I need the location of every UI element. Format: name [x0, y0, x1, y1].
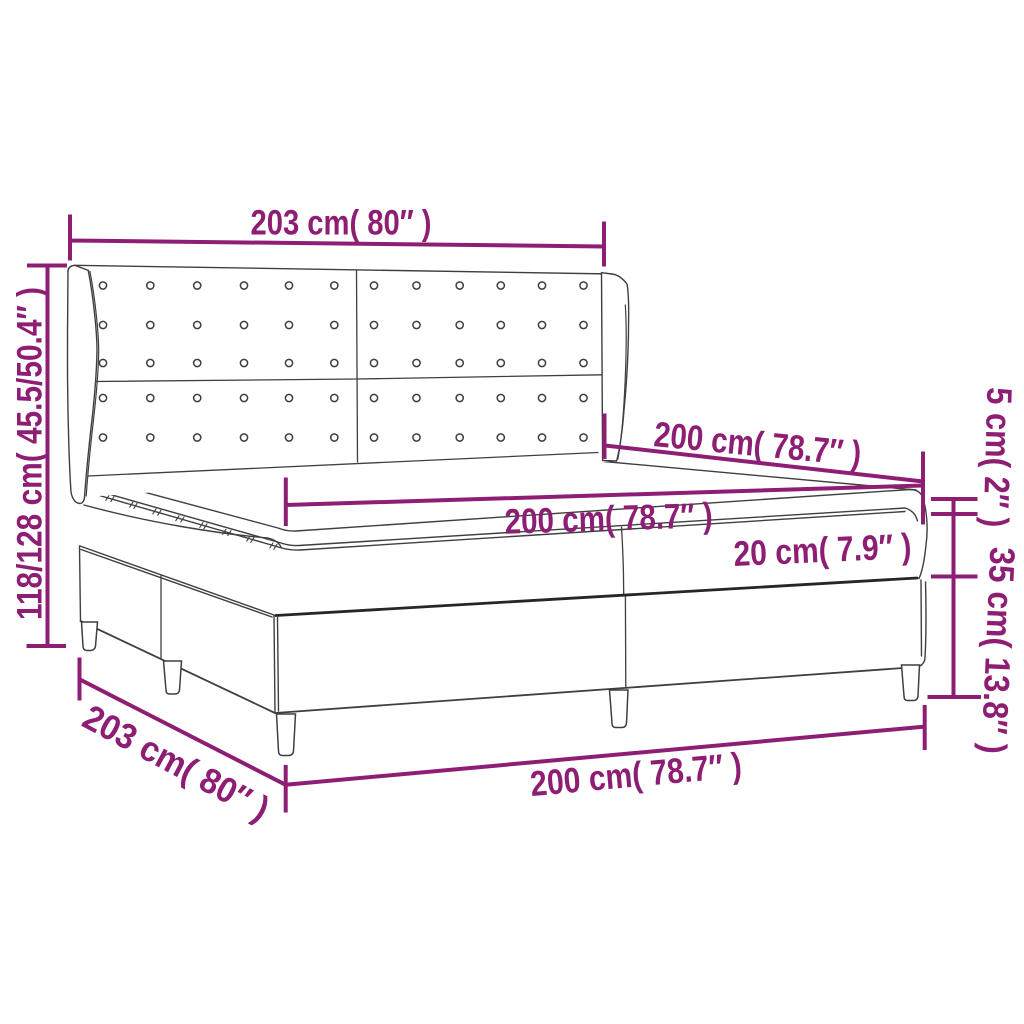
svg-text:200 cm( 78.7″ ): 200 cm( 78.7″ )	[504, 495, 713, 542]
svg-text:20 cm( 7.9″ ): 20 cm( 7.9″ )	[733, 526, 913, 574]
svg-text:118/128 cm( 45.5/50.4″ ): 118/128 cm( 45.5/50.4″ )	[10, 287, 50, 620]
svg-text:203 cm( 80″ ): 203 cm( 80″ )	[251, 203, 432, 243]
svg-text:5 cm( 2″ ): 5 cm( 2″ )	[976, 387, 1020, 528]
